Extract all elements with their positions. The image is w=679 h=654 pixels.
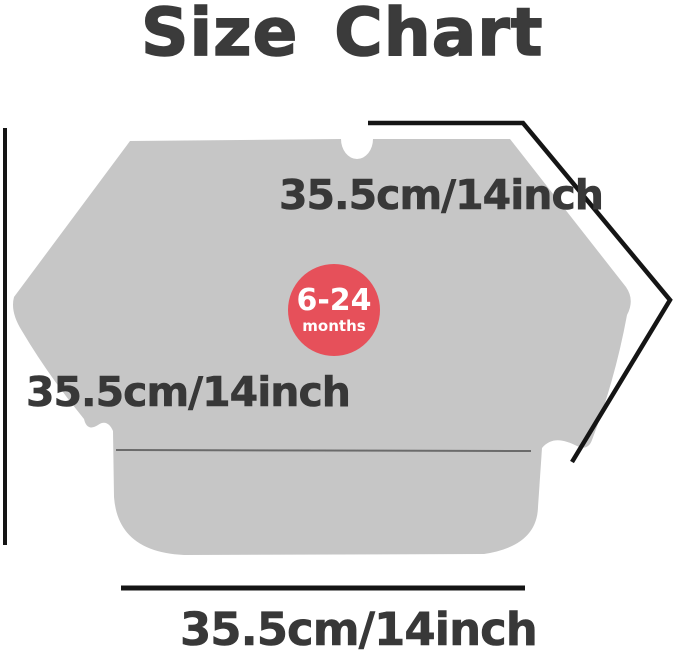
size-chart-image: Size Chart 35.5cm/14inch 35.5cm/14inch 3… <box>0 0 679 654</box>
age-range-badge: 6-24 months <box>288 264 380 356</box>
page-title: Size Chart <box>141 0 543 66</box>
pocket-line <box>116 450 531 451</box>
height-measurement-label: 35.5cm/14inch <box>26 372 350 413</box>
width-measurement-label: 35.5cm/14inch <box>180 607 537 652</box>
sleeve-measurement-label: 35.5cm/14inch <box>279 175 603 216</box>
age-unit-text: months <box>302 319 365 334</box>
age-range-text: 6-24 <box>296 286 371 316</box>
